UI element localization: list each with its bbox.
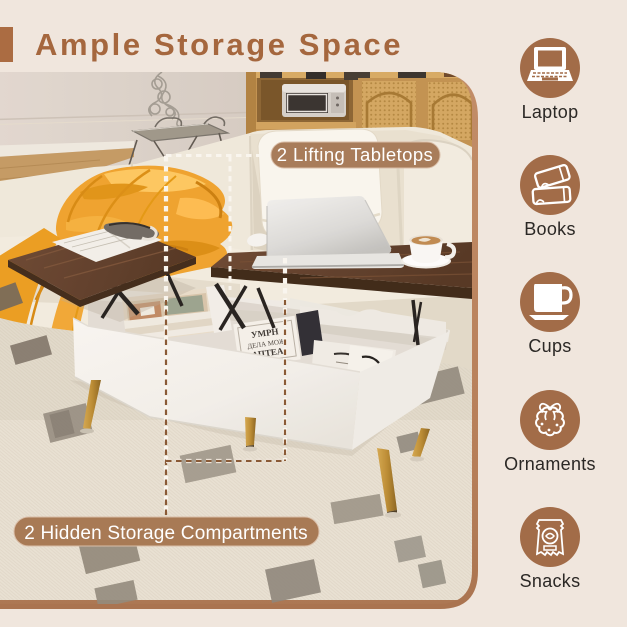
svg-text:2 Hidden Storage Compartments: 2 Hidden Storage Compartments — [24, 523, 308, 544]
svg-text:Ample Storage Space: Ample Storage Space — [35, 27, 403, 62]
svg-text:Books: Books — [524, 219, 576, 239]
svg-text:2 Lifting Tabletops: 2 Lifting Tabletops — [277, 144, 433, 165]
svg-text:Cups: Cups — [528, 336, 571, 356]
svg-text:Ornaments: Ornaments — [504, 454, 596, 474]
svg-text:Laptop: Laptop — [522, 102, 579, 122]
svg-text:Snacks: Snacks — [520, 571, 581, 591]
